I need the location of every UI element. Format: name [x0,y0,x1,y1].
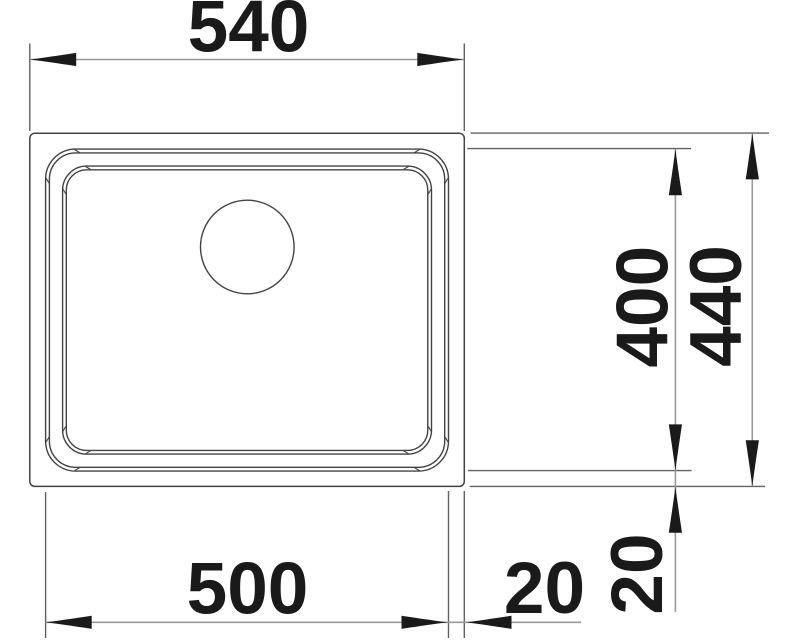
svg-text:400: 400 [603,246,684,368]
svg-text:20: 20 [504,548,585,629]
svg-text:20: 20 [597,533,678,614]
svg-text:540: 540 [188,0,310,68]
svg-text:440: 440 [676,245,757,367]
svg-text:500: 500 [187,549,309,630]
